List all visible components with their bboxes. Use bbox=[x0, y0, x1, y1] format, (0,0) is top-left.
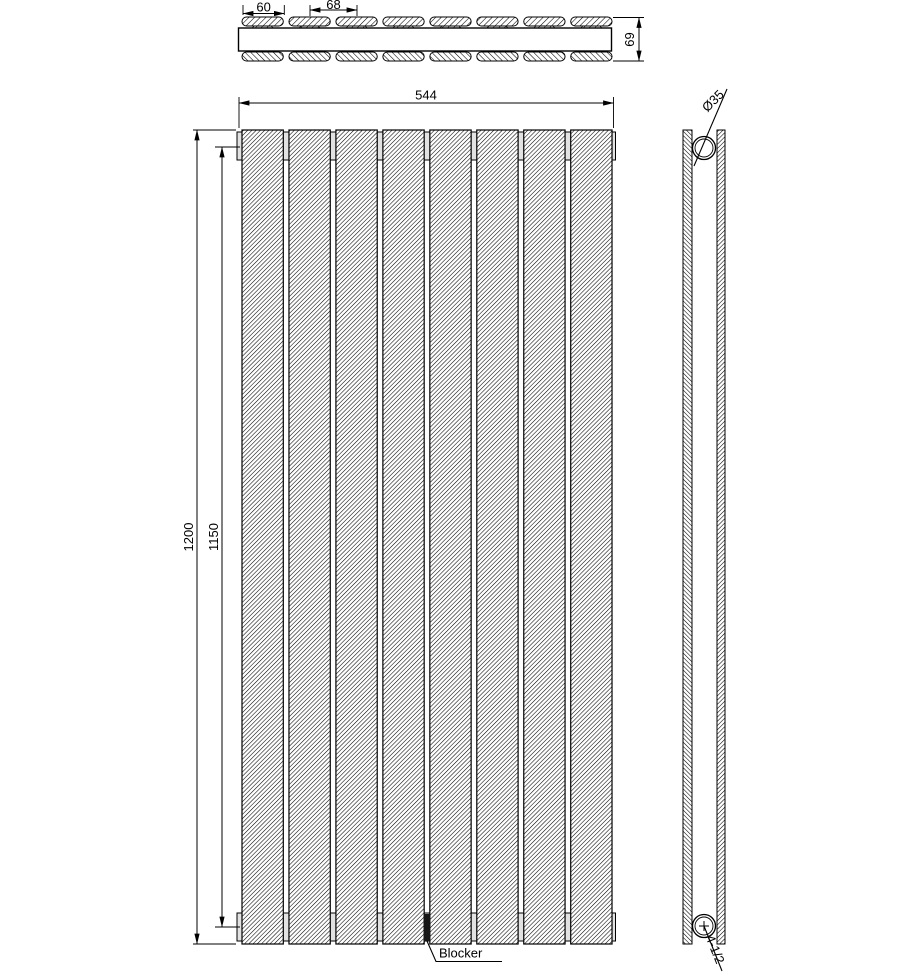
front-panels bbox=[242, 130, 612, 944]
dim-overall-width: 544 bbox=[239, 88, 614, 129]
fin-section-bottom bbox=[383, 52, 424, 61]
fin-section-bottom bbox=[571, 52, 612, 61]
fin-section-bottom bbox=[477, 52, 518, 61]
blocker-element bbox=[424, 914, 431, 941]
fin-section-bottom bbox=[289, 52, 330, 61]
top-view: 60 68 69 bbox=[239, 0, 645, 61]
radiator-panel bbox=[477, 130, 518, 944]
radiator-panel bbox=[289, 130, 330, 944]
top-view-flow-channel bbox=[239, 28, 612, 51]
side-view-front-panel bbox=[683, 130, 692, 944]
dim-depth: 69 bbox=[613, 18, 644, 62]
dim-depth-text: 69 bbox=[622, 32, 637, 46]
dim-panel-width: 60 bbox=[243, 0, 284, 15]
dim-connection-spacing: 1150 bbox=[206, 147, 240, 927]
dim-connection-spacing-text: 1150 bbox=[206, 523, 221, 551]
side-view-back-panel bbox=[717, 130, 725, 944]
dim-panel-pitch: 68 bbox=[310, 0, 357, 16]
fin-section-top bbox=[336, 17, 377, 26]
radiator-panel bbox=[571, 130, 612, 944]
fin-section-bottom bbox=[336, 52, 377, 61]
radiator-panel bbox=[524, 130, 565, 944]
dim-tube-diameter-text: Ø35 bbox=[699, 87, 727, 115]
radiator-technical-drawing-page: 60 68 69 544 bbox=[0, 0, 912, 980]
dim-panel-pitch-text: 68 bbox=[326, 0, 340, 12]
fin-section-top bbox=[477, 17, 518, 26]
fin-section-bottom bbox=[242, 52, 283, 61]
top-tube-section bbox=[693, 137, 716, 160]
front-view: 544 1200 1150 Blocker bbox=[181, 88, 616, 962]
fin-section-top bbox=[383, 17, 424, 26]
dim-overall-width-text: 544 bbox=[415, 88, 437, 103]
dim-panel-width-text: 60 bbox=[256, 0, 270, 15]
fin-section-top bbox=[524, 17, 565, 26]
radiator-technical-drawing: 60 68 69 544 bbox=[0, 0, 912, 980]
side-view: Ø35 4-1/2 bbox=[683, 87, 728, 971]
fin-section-top bbox=[289, 17, 330, 26]
fin-section-top bbox=[430, 17, 471, 26]
radiator-panel bbox=[242, 130, 283, 944]
fin-section-top bbox=[571, 17, 612, 26]
blocker-label: Blocker bbox=[439, 946, 483, 961]
dim-overall-height-text: 1200 bbox=[181, 523, 196, 552]
radiator-panel bbox=[430, 130, 471, 944]
fin-section-bottom bbox=[430, 52, 471, 61]
radiator-panel bbox=[383, 130, 424, 944]
fin-section-bottom bbox=[524, 52, 565, 61]
radiator-panel bbox=[336, 130, 377, 944]
fin-section-top bbox=[242, 17, 283, 26]
